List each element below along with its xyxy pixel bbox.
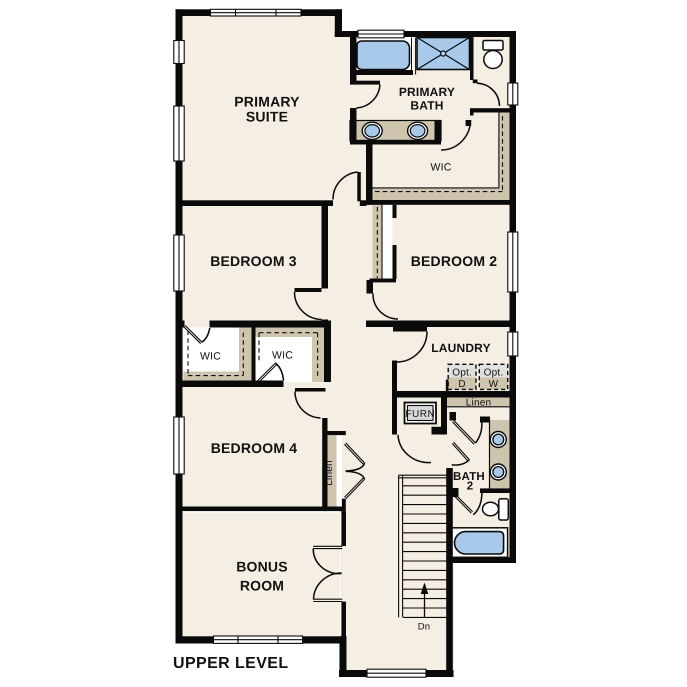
svg-text:ROOM: ROOM bbox=[240, 578, 284, 594]
svg-text:BEDROOM 3: BEDROOM 3 bbox=[210, 253, 297, 269]
svg-text:Linen: Linen bbox=[466, 397, 491, 408]
svg-text:WIC: WIC bbox=[200, 350, 221, 362]
svg-text:D: D bbox=[458, 379, 465, 390]
svg-text:UPPER LEVEL: UPPER LEVEL bbox=[173, 655, 289, 672]
svg-text:WIC: WIC bbox=[272, 349, 293, 361]
svg-text:LAUNDRY: LAUNDRY bbox=[431, 341, 491, 355]
svg-text:BATH: BATH bbox=[410, 99, 443, 113]
svg-text:2: 2 bbox=[467, 481, 474, 493]
svg-text:BEDROOM 4: BEDROOM 4 bbox=[211, 440, 298, 456]
svg-text:W: W bbox=[489, 379, 499, 390]
svg-text:Dn: Dn bbox=[418, 621, 431, 632]
svg-text:BEDROOM 2: BEDROOM 2 bbox=[411, 253, 498, 269]
svg-text:SUITE: SUITE bbox=[246, 109, 288, 125]
svg-text:Linen: Linen bbox=[324, 460, 335, 485]
svg-text:WIC: WIC bbox=[430, 161, 451, 173]
svg-text:PRIMARY: PRIMARY bbox=[399, 85, 455, 99]
svg-text:Opt.: Opt. bbox=[452, 368, 472, 379]
svg-text:PRIMARY: PRIMARY bbox=[234, 94, 300, 110]
svg-text:BONUS: BONUS bbox=[236, 559, 288, 575]
svg-text:Opt.: Opt. bbox=[484, 368, 504, 379]
svg-text:FURN: FURN bbox=[405, 409, 435, 420]
